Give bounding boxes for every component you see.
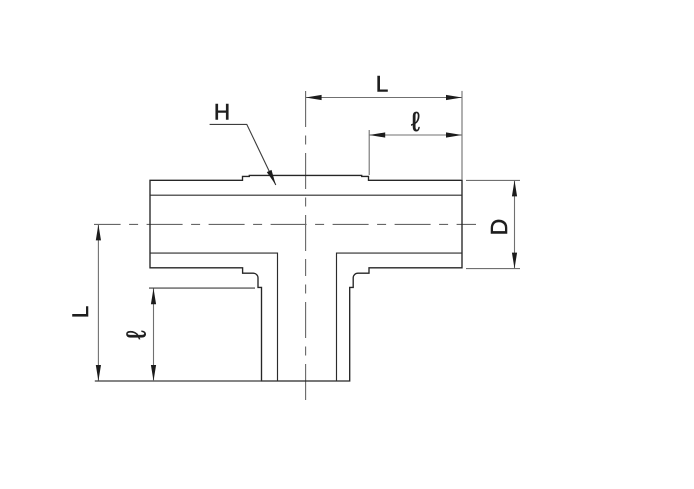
svg-text:ℓ: ℓ: [411, 106, 420, 137]
svg-text:H: H: [214, 100, 230, 125]
svg-text:L: L: [376, 72, 389, 97]
svg-text:ℓ: ℓ: [121, 330, 152, 339]
svg-text:L: L: [68, 306, 93, 319]
svg-text:D: D: [486, 219, 512, 236]
